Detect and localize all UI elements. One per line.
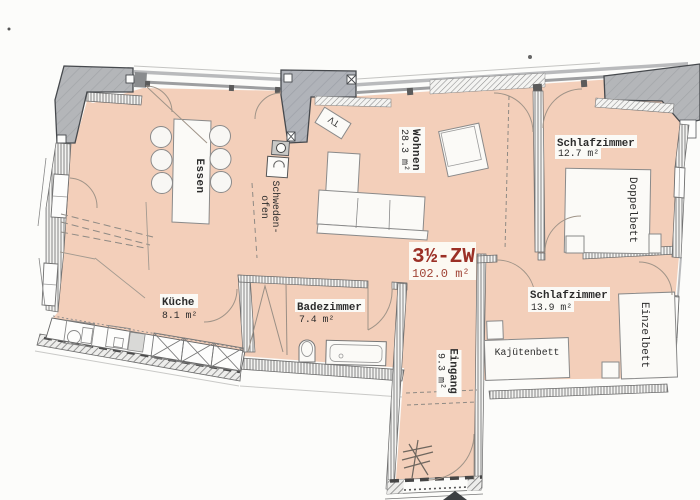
svg-text:Eingang: Eingang: [447, 348, 459, 393]
svg-text:102.0 m²: 102.0 m²: [412, 267, 470, 281]
svg-text:Einzelbett: Einzelbett: [638, 302, 650, 368]
svg-text:Doppelbett: Doppelbett: [626, 177, 638, 243]
svg-text:Schweden-: Schweden-: [270, 181, 281, 234]
svg-text:Badezimmer: Badezimmer: [297, 302, 362, 314]
svg-text:28.3 m²: 28.3 m²: [398, 129, 409, 171]
svg-text:9.3 m²: 9.3 m²: [435, 353, 446, 389]
svg-text:12.7 m²: 12.7 m²: [558, 148, 599, 159]
svg-text:7.4 m²: 7.4 m²: [299, 314, 334, 325]
svg-text:Schlafzimmer: Schlafzimmer: [530, 290, 608, 302]
svg-text:Wohnen: Wohnen: [409, 129, 421, 171]
svg-text:8.1 m²: 8.1 m²: [162, 310, 197, 321]
svg-text:ofen: ofen: [259, 195, 270, 219]
svg-text:Essen: Essen: [193, 158, 205, 193]
svg-text:Kajütenbett: Kajütenbett: [495, 347, 560, 358]
svg-text:13.9 m²: 13.9 m²: [531, 302, 572, 313]
svg-text:3½-ZW: 3½-ZW: [412, 246, 475, 269]
svg-text:Küche: Küche: [162, 297, 194, 309]
